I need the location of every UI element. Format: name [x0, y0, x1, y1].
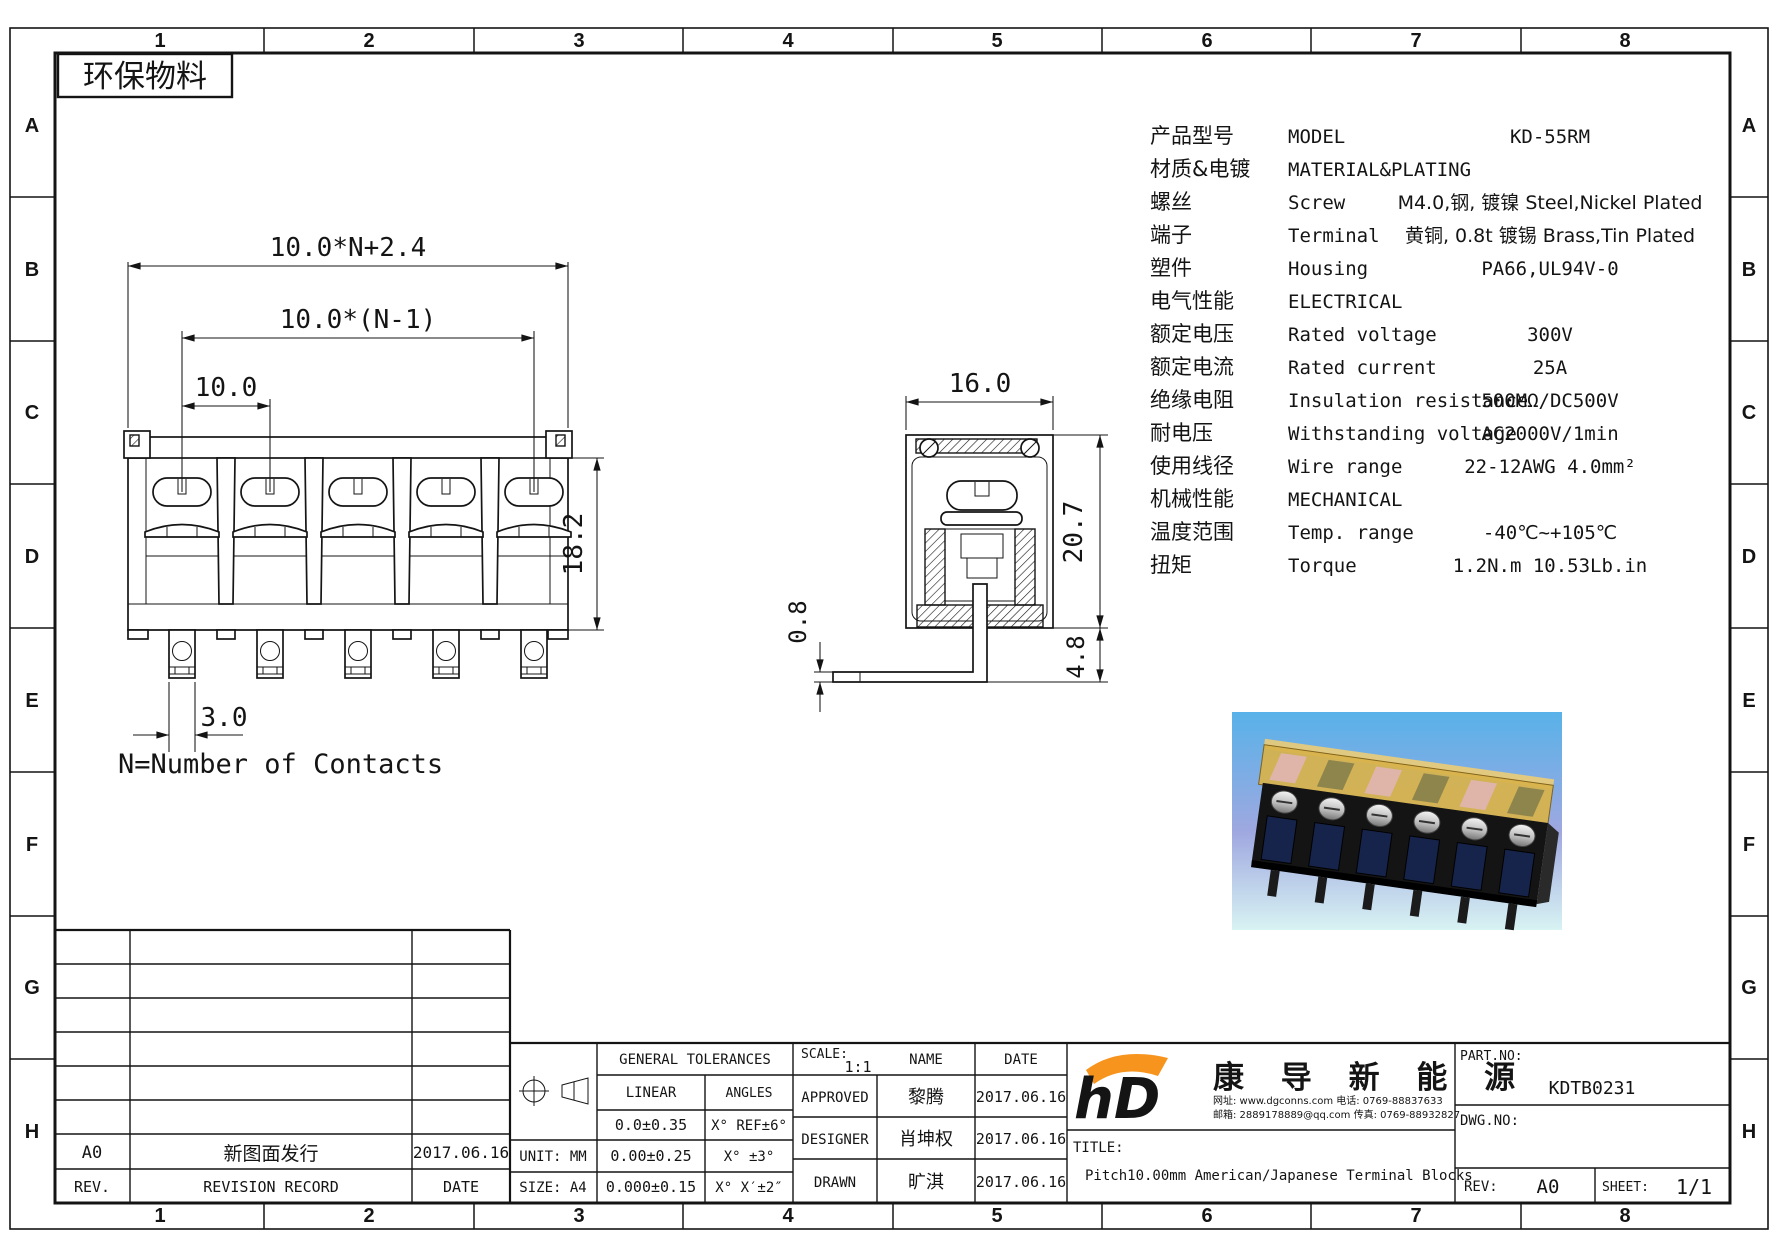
drawing-canvas: 1 2 3 4 5 6 7 8 1 2 3 4 5 6 7 8 A B C D … — [0, 0, 1778, 1257]
linear-header: LINEAR — [626, 1085, 677, 1101]
eco-material-label: 环保物料 — [83, 59, 207, 95]
spec-cn: 机械性能 — [1150, 487, 1234, 511]
tolerances-header: GENERAL TOLERANCES — [619, 1052, 771, 1068]
product-photo — [1232, 712, 1566, 935]
row-label-left: H — [25, 1121, 39, 1143]
spec-cn: 额定电流 — [1150, 355, 1234, 379]
company-logo: hD — [1074, 1054, 1168, 1132]
spec-val: 22-12AWG 4.0mm² — [1464, 456, 1636, 478]
spec-val: -40℃~+105℃ — [1483, 522, 1617, 544]
spec-cn: 扭矩 — [1150, 553, 1192, 577]
dim-body-height: 18.2 — [559, 513, 589, 576]
linear-tol-2: 0.00±0.25 — [610, 1147, 691, 1165]
spec-cn: 耐电压 — [1150, 421, 1213, 445]
col-label-top: 4 — [782, 30, 794, 52]
row-label-right: D — [1742, 546, 1756, 568]
dim-pin-width: 3.0 — [201, 703, 248, 733]
designer-label: DESIGNER — [801, 1132, 869, 1148]
title-block: A0 新图面发行 2017.06.16 REV. REVISION RECORD… — [55, 930, 1730, 1203]
spec-en: Screw — [1288, 192, 1346, 214]
row-label-right: G — [1741, 977, 1757, 999]
row-label-right: F — [1743, 834, 1755, 856]
approved-name: 黎腾 — [908, 1087, 944, 1108]
sheet-value: 1/1 — [1676, 1175, 1712, 1199]
spec-cn: 绝缘电阻 — [1150, 388, 1234, 412]
spec-cn: 额定电压 — [1150, 322, 1234, 346]
dim-pitch: 10.0 — [195, 373, 258, 403]
spec-en: Rated voltage — [1288, 324, 1437, 346]
drawn-date: 2017.06.16 — [976, 1173, 1066, 1191]
dim-side-height: 20.7 — [1059, 501, 1089, 564]
spec-en: Torque — [1288, 555, 1357, 577]
col-label-top: 6 — [1201, 30, 1212, 52]
angle-tol-2: X° ±3° — [724, 1149, 775, 1165]
linear-tol-3: 0.000±0.15 — [606, 1178, 696, 1196]
angles-header: ANGLES — [726, 1086, 773, 1101]
title-label: TITLE: — [1073, 1140, 1124, 1156]
name-header: NAME — [909, 1052, 943, 1068]
sheet-label: SHEET: — [1602, 1180, 1649, 1195]
spec-cn: 产品型号 — [1150, 124, 1234, 148]
eco-material-stamp: 环保物料 — [58, 54, 232, 97]
projection-symbol-icon — [519, 1076, 588, 1106]
revision-rev: A0 — [82, 1143, 102, 1163]
row-label-left: E — [25, 690, 38, 712]
spec-en: MECHANICAL — [1288, 489, 1402, 511]
dim-pin-thickness: 0.8 — [784, 600, 812, 643]
row-label-right: B — [1742, 259, 1756, 281]
spec-en: MODEL — [1288, 126, 1345, 148]
row-label-right: E — [1742, 690, 1755, 712]
rev-label: REV: — [1464, 1179, 1498, 1195]
angle-tol-3: X° X′±2″ — [715, 1180, 782, 1196]
dim-contact-span: 10.0*(N-1) — [280, 305, 437, 335]
designer-date: 2017.06.16 — [976, 1130, 1066, 1148]
spec-val: AC2000V/1min — [1481, 423, 1618, 445]
spec-val: 1.2N.m 10.53Lb.in — [1453, 555, 1647, 577]
angle-tol-1: X° REF±6° — [711, 1118, 787, 1134]
linear-tol-1: 0.0±0.35 — [615, 1116, 687, 1134]
spec-table: 产品型号 MODEL KD-55RM 材质&电镀 MATERIAL&PLATIN… — [1150, 124, 1702, 577]
contacts-note: N=Number of Contacts — [118, 749, 443, 780]
col-label-top: 8 — [1619, 30, 1630, 52]
revision-date: 2017.06.16 — [413, 1143, 509, 1162]
drawn-name: 旷淇 — [908, 1172, 944, 1193]
spec-en: MATERIAL&PLATING — [1288, 159, 1471, 181]
size-label: SIZE: A4 — [519, 1180, 586, 1196]
dim-side-width: 16.0 — [949, 369, 1012, 399]
company-name: 康 导 新 能 源 — [1213, 1060, 1528, 1096]
row-label-left: G — [24, 977, 40, 999]
rev-value: A0 — [1537, 1176, 1560, 1198]
col-label-bottom: 4 — [782, 1205, 794, 1227]
revision-date-label: DATE — [443, 1178, 479, 1196]
drawing-title: Pitch10.00mm American/Japanese Terminal … — [1085, 1168, 1473, 1184]
row-label-left: F — [26, 834, 38, 856]
front-view: 10.0*N+2.4 10.0*(N-1) 10.0 18.2 3.0 — [124, 233, 604, 752]
revision-rev-label: REV. — [74, 1178, 110, 1196]
spec-en: Wire range — [1288, 456, 1402, 478]
row-label-left: C — [25, 402, 39, 424]
spec-cn: 塑件 — [1150, 256, 1192, 280]
dwg-no-label: DWG.NO: — [1460, 1113, 1519, 1129]
designer-name: 肖坤权 — [899, 1129, 953, 1150]
spec-cn: 电气性能 — [1150, 289, 1234, 313]
spec-val: 25A — [1533, 357, 1568, 379]
col-label-bottom: 7 — [1410, 1205, 1421, 1227]
row-label-left: D — [25, 546, 39, 568]
spec-cn: 温度范围 — [1150, 520, 1234, 544]
col-label-bottom: 5 — [991, 1205, 1002, 1227]
spec-en: ELECTRICAL — [1288, 291, 1402, 313]
spec-en: Housing — [1288, 258, 1368, 280]
col-label-bottom: 1 — [154, 1205, 165, 1227]
dim-pin-length: 4.8 — [1062, 635, 1090, 678]
unit-label: UNIT: MM — [519, 1149, 586, 1165]
spec-en: Temp. range — [1288, 522, 1414, 544]
col-label-bottom: 3 — [573, 1205, 584, 1227]
spec-cn: 材质&电镀 — [1150, 157, 1250, 181]
col-label-bottom: 2 — [363, 1205, 374, 1227]
spec-val: 黄铜, 0.8t 镀锡 Brass,Tin Plated — [1405, 225, 1695, 247]
spec-cn: 使用线径 — [1150, 454, 1234, 478]
spec-en: Terminal — [1288, 225, 1380, 247]
company-contact-line-1: 网址: www.dgconns.com 电话: 0769-88837633 — [1213, 1094, 1443, 1107]
row-label-right: A — [1742, 115, 1756, 137]
approved-date: 2017.06.16 — [976, 1088, 1066, 1106]
row-label-left: A — [25, 115, 39, 137]
col-label-top: 5 — [991, 30, 1002, 52]
side-view: 16.0 20.7 4.8 0.8 — [784, 369, 1108, 712]
col-label-top: 2 — [363, 30, 374, 52]
part-no-label: PART.NO: — [1460, 1049, 1523, 1064]
row-label-left: B — [25, 259, 39, 281]
row-label-right: C — [1742, 402, 1756, 424]
revision-record: 新图面发行 — [223, 1143, 318, 1165]
scale-label: SCALE: — [801, 1047, 848, 1062]
col-label-bottom: 6 — [1201, 1205, 1212, 1227]
scale-value: 1:1 — [844, 1058, 871, 1076]
drawing-sheet: 1 2 3 4 5 6 7 8 1 2 3 4 5 6 7 8 A B C D … — [0, 0, 1778, 1257]
spec-cn: 端子 — [1150, 223, 1192, 247]
spec-val: KD-55RM — [1510, 126, 1590, 148]
col-label-top: 1 — [154, 30, 165, 52]
spec-val: 300V — [1527, 324, 1573, 346]
dim-overall-width: 10.0*N+2.4 — [270, 233, 427, 263]
date-header: DATE — [1004, 1052, 1038, 1068]
row-label-right: H — [1742, 1121, 1756, 1143]
part-no-value: KDTB0231 — [1549, 1078, 1636, 1099]
logo-text: hD — [1074, 1067, 1160, 1132]
spec-cn: 螺丝 — [1150, 190, 1192, 214]
company-contact-line-2: 邮箱: 2889178889@qq.com 传真: 0769-88932827 — [1213, 1108, 1460, 1121]
col-label-top: 3 — [573, 30, 584, 52]
spec-val: M4.0,钢, 镀镍 Steel,Nickel Plated — [1398, 192, 1703, 214]
spec-val: 500MΩ/DC500V — [1481, 390, 1618, 412]
approved-label: APPROVED — [801, 1090, 868, 1106]
col-label-bottom: 8 — [1619, 1205, 1630, 1227]
drawn-label: DRAWN — [814, 1175, 856, 1191]
revision-record-label: REVISION RECORD — [203, 1178, 338, 1196]
spec-en: Rated current — [1288, 357, 1437, 379]
col-label-top: 7 — [1410, 30, 1421, 52]
spec-val: PA66,UL94V-0 — [1481, 258, 1618, 280]
